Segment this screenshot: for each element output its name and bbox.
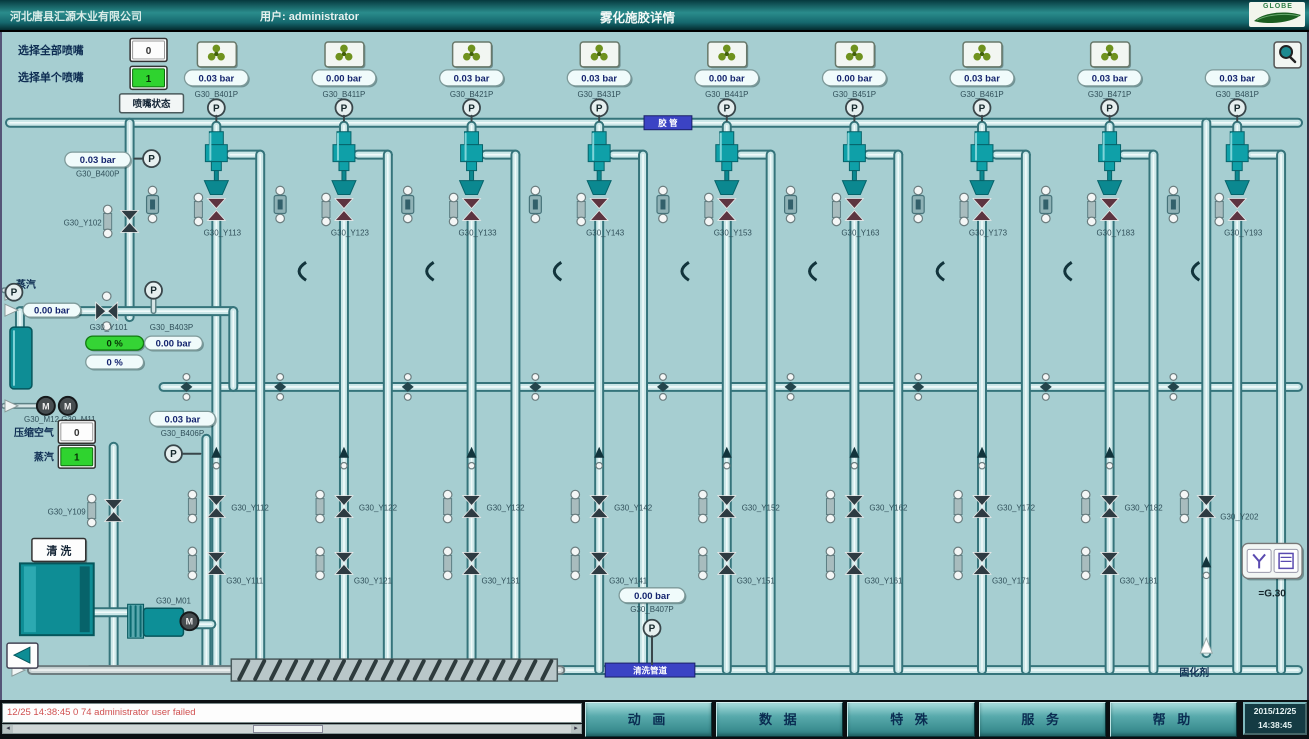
glue-tank [20, 563, 94, 635]
svg-text:压缩空气: 压缩空气 [14, 426, 54, 439]
svg-text:G30_B471P: G30_B471P [1088, 90, 1131, 99]
valve-G30_Y163: G30_Y163 [832, 193, 880, 237]
nav-button-4[interactable]: 服 务 [979, 702, 1106, 737]
datetime-display: 2015/12/25 14:38:45 [1243, 702, 1307, 735]
pipe-fitting [274, 374, 286, 401]
pressure-display-G30_B401P: 0.03 bar [184, 70, 249, 87]
svg-text:G30_Y121: G30_Y121 [354, 576, 393, 585]
pipe-fitting [912, 374, 924, 401]
valve-G30_Y161: G30_Y161 [826, 547, 903, 585]
spray-nozzle [332, 132, 356, 195]
bottom-bar: 12/25 14:38:45 0 74 administrator user f… [0, 700, 1309, 739]
svg-text:0.03 bar: 0.03 bar [964, 73, 1000, 84]
pressure-sensor: P [718, 99, 735, 116]
company-logo: GLOBE [1249, 2, 1305, 27]
inline-valve [912, 186, 924, 222]
pressure-display-G30_B421P: 0.03 bar [440, 70, 505, 87]
steam-pressure-display: 0.00 bar [23, 303, 82, 318]
pressure-display-G30_B431P: 0.03 bar [567, 70, 632, 87]
svg-text:0.03 bar: 0.03 bar [80, 155, 116, 166]
motor: M [180, 612, 198, 630]
svg-text:G30_Y193: G30_Y193 [1224, 228, 1263, 237]
svg-text:G30_B401P: G30_B401P [195, 90, 238, 99]
pressure-sensor: P [974, 99, 991, 116]
flow-display: 0 % [86, 355, 145, 370]
svg-text:G30_Y163: G30_Y163 [841, 228, 880, 237]
time-text: 14:38:45 [1245, 718, 1305, 732]
svg-text:1: 1 [146, 74, 152, 85]
svg-text:M: M [42, 401, 49, 411]
svg-text:=G.30: =G.30 [1258, 588, 1286, 599]
air-input[interactable]: 0 [58, 420, 95, 443]
check-valve [1065, 262, 1072, 280]
valve-G30_Y143: G30_Y143 [577, 193, 625, 237]
valve-G30_Y181: G30_Y181 [1081, 547, 1158, 585]
check-valve [1192, 262, 1199, 280]
svg-text:G30_Y133: G30_Y133 [458, 228, 497, 237]
svg-text:G30_B406P: G30_B406P [161, 429, 204, 438]
valve-G30_Y111: G30_Y111 [188, 547, 264, 585]
page-title: 雾化施胶详情 [600, 7, 675, 26]
fan-button-7[interactable] [963, 42, 1003, 68]
svg-text:G30_Y131: G30_Y131 [482, 576, 521, 585]
svg-text:M: M [64, 401, 71, 411]
fan-button-8[interactable] [1091, 42, 1131, 68]
valve-G30_Y202: G30_Y202 [1180, 490, 1259, 523]
pressure-display-G30_B400P: 0.03 bar [65, 152, 132, 168]
fan-button-5[interactable] [708, 42, 748, 68]
nav-button-5[interactable]: 帮 助 [1110, 702, 1237, 737]
check-valve [554, 262, 561, 280]
svg-text:G30_Y113: G30_Y113 [204, 228, 242, 237]
nozzle-status-button[interactable]: 喷嘴状态 [120, 94, 184, 113]
alarm-message: 12/25 14:38:45 0 74 administrator user f… [2, 703, 582, 723]
svg-text:P: P [468, 103, 475, 114]
hmi-screen: 河北唐县汇源木业有限公司 用户: administrator 雾化施胶详情 GL… [0, 0, 1309, 739]
zoom-button[interactable] [1274, 42, 1301, 68]
svg-text:0.00 bar: 0.00 bar [34, 306, 70, 317]
svg-text:G30_Y153: G30_Y153 [714, 228, 753, 237]
fan-button-1[interactable] [197, 42, 237, 68]
panel-button-1[interactable] [1247, 549, 1271, 572]
svg-text:0.03 bar: 0.03 bar [1092, 73, 1128, 84]
svg-text:0: 0 [146, 46, 152, 57]
tool-panel [1242, 543, 1304, 580]
diagram-area: G30_Y113G30_Y112G30_Y111G30_Y123G30_Y122… [0, 32, 1309, 700]
screw-conveyor [231, 659, 557, 681]
pipe-label: 清洗管道 [605, 663, 695, 677]
check-valve [299, 262, 306, 280]
svg-text:M: M [186, 617, 193, 627]
svg-text:P: P [649, 624, 656, 635]
svg-text:P: P [723, 103, 730, 114]
inline-valve [1040, 186, 1052, 222]
pressure-sensor: P [463, 99, 480, 116]
nav-buttons: 动 画数 据特 殊服 务帮 助 [585, 702, 1237, 737]
scroll-right-arrow[interactable]: ▸ [571, 725, 581, 733]
nav-button-3[interactable]: 特 殊 [847, 702, 974, 737]
pressure-display-G30_B481P: 0.03 bar [1205, 70, 1270, 87]
svg-text:G30_Y111: G30_Y111 [226, 576, 263, 585]
piping-diagram: G30_Y113G30_Y112G30_Y111G30_Y123G30_Y122… [2, 32, 1307, 698]
svg-text:G30_Y123: G30_Y123 [331, 228, 370, 237]
valve-G30_Y151: G30_Y151 [699, 547, 776, 585]
svg-text:G30_B421P: G30_B421P [450, 90, 493, 99]
back-button[interactable] [7, 643, 38, 668]
valve-G30_Y171: G30_Y171 [954, 547, 1031, 585]
wash-button[interactable]: 清 洗 [32, 538, 87, 562]
valve-G30_Y131: G30_Y131 [443, 547, 520, 585]
pressure-sensor: P [1229, 99, 1246, 116]
svg-text:P: P [11, 288, 18, 299]
check-valve [937, 262, 944, 280]
pipe-fitting [529, 374, 541, 401]
svg-text:P: P [1234, 103, 1241, 114]
svg-text:0.03 bar: 0.03 bar [1219, 73, 1255, 84]
svg-text:选择单个喷嘴: 选择单个喷嘴 [18, 70, 84, 84]
spray-nozzle [587, 132, 611, 195]
svg-text:G30_Y109: G30_Y109 [48, 508, 87, 517]
pressure-sensor: P [208, 99, 225, 116]
valve-G30_Y141: G30_Y141 [571, 547, 648, 585]
inline-valve [1167, 186, 1179, 222]
svg-text:0 %: 0 % [106, 339, 123, 350]
svg-text:G30_Y181: G30_Y181 [1120, 576, 1159, 585]
select-all-input[interactable]: 0 [130, 39, 167, 62]
fan-button-3[interactable] [453, 42, 493, 68]
svg-text:G30_B403P: G30_B403P [150, 323, 193, 332]
svg-text:G30_M01: G30_M01 [156, 596, 192, 605]
valve-G30_Y113: G30_Y113 [194, 193, 242, 237]
pressure-display-G30_B441P: 0.00 bar [695, 70, 760, 87]
svg-text:G30_Y132: G30_Y132 [487, 504, 526, 513]
svg-text:0 %: 0 % [106, 357, 123, 368]
svg-text:0.03 bar: 0.03 bar [581, 73, 617, 84]
svg-text:G30_Y172: G30_Y172 [997, 504, 1036, 513]
svg-text:固化剂: 固化剂 [1179, 666, 1209, 679]
svg-text:P: P [596, 103, 603, 114]
svg-text:G30_Y173: G30_Y173 [969, 228, 1008, 237]
spray-nozzle [715, 132, 739, 195]
svg-text:P: P [148, 154, 155, 165]
svg-text:0.03 bar: 0.03 bar [165, 414, 201, 425]
svg-text:G30_B461P: G30_B461P [960, 90, 1003, 99]
scroll-left-arrow[interactable]: ◂ [3, 725, 13, 733]
spray-nozzle [1098, 132, 1122, 195]
svg-text:0.03 bar: 0.03 bar [198, 73, 234, 84]
valve-G30_Y123: G30_Y123 [322, 193, 370, 237]
inline-valve [147, 186, 159, 222]
svg-text:G30_Y102: G30_Y102 [64, 218, 103, 227]
svg-text:G30_Y112: G30_Y112 [231, 504, 269, 513]
nozzle-select-panel: 选择全部喷嘴0选择单个喷嘴1喷嘴状态 [18, 39, 183, 113]
svg-text:G30_B400P: G30_B400P [76, 170, 119, 179]
svg-text:G30_Y161: G30_Y161 [864, 576, 903, 585]
svg-text:G30_B481P: G30_B481P [1216, 90, 1259, 99]
svg-text:0.00 bar: 0.00 bar [156, 339, 192, 350]
spray-nozzle [1225, 132, 1249, 195]
pressure-sensor: P [143, 150, 160, 167]
svg-text:G30_B407P: G30_B407P [630, 605, 673, 614]
svg-text:G30_Y143: G30_Y143 [586, 228, 625, 237]
pressure-sensor: P [335, 99, 352, 116]
valve-G30_Y183: G30_Y183 [1087, 193, 1135, 237]
svg-text:G30_B411P: G30_B411P [323, 90, 366, 99]
pressure-display-G30_B451P: 0.00 bar [822, 70, 887, 87]
pressure-sensor: P [846, 99, 863, 116]
svg-text:清 洗: 清 洗 [46, 543, 71, 557]
check-valve [427, 262, 434, 280]
pressure-sensor: P [5, 284, 22, 301]
pipe-fitting [180, 374, 192, 401]
fan-button-6[interactable] [835, 42, 875, 68]
fan-button-4[interactable] [580, 42, 620, 68]
pressure-sensor: P [1101, 99, 1118, 116]
inline-valve [529, 186, 541, 222]
svg-text:G30_Y202: G30_Y202 [1220, 513, 1259, 522]
svg-text:喷嘴状态: 喷嘴状态 [133, 98, 171, 110]
valve-G30_Y173: G30_Y173 [960, 193, 1008, 237]
svg-text:0.00 bar: 0.00 bar [709, 73, 745, 84]
scroll-thumb[interactable] [253, 725, 323, 733]
logo-text: GLOBE [1263, 3, 1293, 10]
select-single-input[interactable]: 1 [130, 66, 167, 89]
svg-text:P: P [979, 103, 986, 114]
valve-G30_Y121: G30_Y121 [316, 547, 393, 585]
svg-text:1: 1 [74, 453, 80, 464]
valve-G30_Y153: G30_Y153 [705, 193, 753, 237]
inline-valve [785, 186, 797, 222]
spray-nozzle [842, 132, 866, 195]
flow-display-green: 0 % [86, 336, 145, 351]
svg-text:G30_Y152: G30_Y152 [742, 504, 781, 513]
svg-text:P: P [1106, 103, 1113, 114]
pressure-display-G30_B411P: 0.00 bar [312, 70, 377, 87]
check-valve [810, 262, 817, 280]
pipe-label: 胶 管 [644, 116, 692, 130]
fan-button-2[interactable] [325, 42, 365, 68]
spray-nozzle [970, 132, 994, 195]
small-tank [10, 327, 32, 389]
svg-text:P: P [213, 103, 220, 114]
inline-valve [402, 186, 414, 222]
svg-text:G30_Y142: G30_Y142 [614, 504, 653, 513]
svg-text:0.00 bar: 0.00 bar [326, 73, 362, 84]
svg-text:G30_Y182: G30_Y182 [1125, 504, 1164, 513]
svg-text:G30_Y162: G30_Y162 [869, 504, 908, 513]
spray-nozzle [460, 132, 484, 195]
motor: M [37, 397, 55, 415]
svg-text:P: P [851, 103, 858, 114]
svg-text:胶 管: 胶 管 [658, 118, 678, 128]
svg-text:0.03 bar: 0.03 bar [454, 73, 490, 84]
pressure-sensor: P [644, 620, 661, 637]
pressure-display-G30_B471P: 0.03 bar [1078, 70, 1143, 87]
inline-valve [274, 186, 286, 222]
pipe-fitting [402, 374, 414, 401]
svg-text:G30_Y171: G30_Y171 [992, 576, 1031, 585]
svg-text:G30_Y151: G30_Y151 [737, 576, 776, 585]
alarm-panel: 12/25 14:38:45 0 74 administrator user f… [2, 703, 582, 736]
valve-G30_Y193: G30_Y193 [1215, 193, 1263, 237]
svg-text:G30_B431P: G30_B431P [577, 90, 620, 99]
company-name: 河北唐县汇源木业有限公司 [10, 8, 142, 24]
pressure-display-G30_B403P: 0.00 bar [145, 336, 204, 351]
svg-text:0: 0 [74, 428, 80, 439]
pipe-fitting [1040, 374, 1052, 401]
svg-text:G30_Y122: G30_Y122 [359, 504, 398, 513]
svg-text:P: P [150, 286, 157, 297]
user-label: 用户: administrator [260, 8, 359, 24]
svg-text:G30_B441P: G30_B441P [705, 90, 748, 99]
nav-button-2[interactable]: 数 据 [716, 702, 843, 737]
pump-G30_M01: MG30_M01 [128, 596, 199, 638]
svg-text:0.00 bar: 0.00 bar [634, 591, 670, 602]
svg-text:P: P [170, 449, 177, 460]
inline-valve [657, 186, 669, 222]
pipe-fitting [785, 374, 797, 401]
pressure-display-G30_B461P: 0.03 bar [950, 70, 1015, 87]
spray-nozzle [204, 132, 228, 195]
svg-text:G30_Y183: G30_Y183 [1097, 228, 1136, 237]
pipe-fitting [1167, 374, 1179, 401]
pressure-sensor: P [591, 99, 608, 116]
svg-text:蒸汽: 蒸汽 [34, 451, 54, 464]
nav-button-1[interactable]: 动 画 [585, 702, 712, 737]
alarm-scrollbar[interactable]: ◂ ▸ [2, 724, 582, 734]
svg-text:0.00 bar: 0.00 bar [836, 73, 872, 84]
panel-button-2[interactable] [1274, 549, 1298, 572]
pressure-sensor: P [145, 282, 162, 299]
svg-text:P: P [341, 103, 348, 114]
svg-text:G30_B451P: G30_B451P [833, 90, 876, 99]
svg-text:选择全部喷嘴: 选择全部喷嘴 [18, 43, 84, 57]
check-valve [682, 262, 689, 280]
motor: M [59, 397, 77, 415]
title-bar: 河北唐县汇源木业有限公司 用户: administrator 雾化施胶详情 GL… [0, 0, 1309, 32]
svg-text:清洗管道: 清洗管道 [633, 666, 667, 676]
steam-input[interactable]: 1 [58, 445, 95, 468]
pressure-display-G30_B407P: 0.00 bar [619, 588, 686, 604]
date-text: 2015/12/25 [1245, 704, 1305, 718]
pressure-sensor: P [165, 445, 182, 462]
pressure-display-G30_B406P: 0.03 bar [150, 411, 217, 427]
pipe-fitting [657, 374, 669, 401]
svg-text:G30_Y101: G30_Y101 [90, 323, 129, 332]
valve-G30_Y133: G30_Y133 [449, 193, 497, 237]
svg-text:G30_Y141: G30_Y141 [609, 576, 648, 585]
